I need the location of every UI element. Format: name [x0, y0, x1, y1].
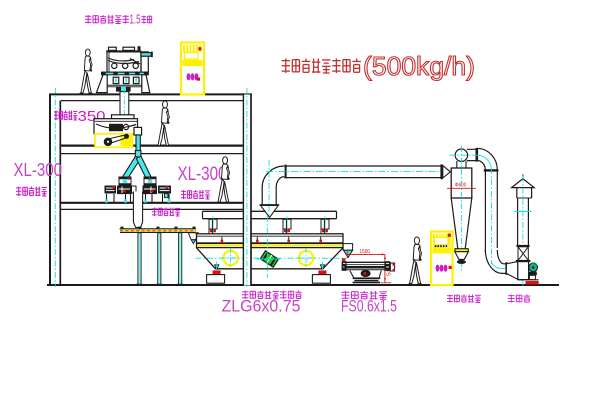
svg-text:FS0.6x1.5: FS0.6x1.5: [341, 297, 397, 316]
svg-text:Φ600: Φ600: [455, 182, 467, 188]
svg-text:XL-300: XL-300: [178, 164, 227, 185]
svg-text:XL-300: XL-300: [14, 159, 63, 180]
svg-text:(500kg/h): (500kg/h): [363, 51, 475, 81]
svg-text:1.5: 1.5: [130, 12, 141, 27]
svg-text:1500: 1500: [360, 249, 371, 255]
svg-text:ZLG6x0.75: ZLG6x0.75: [222, 297, 301, 316]
